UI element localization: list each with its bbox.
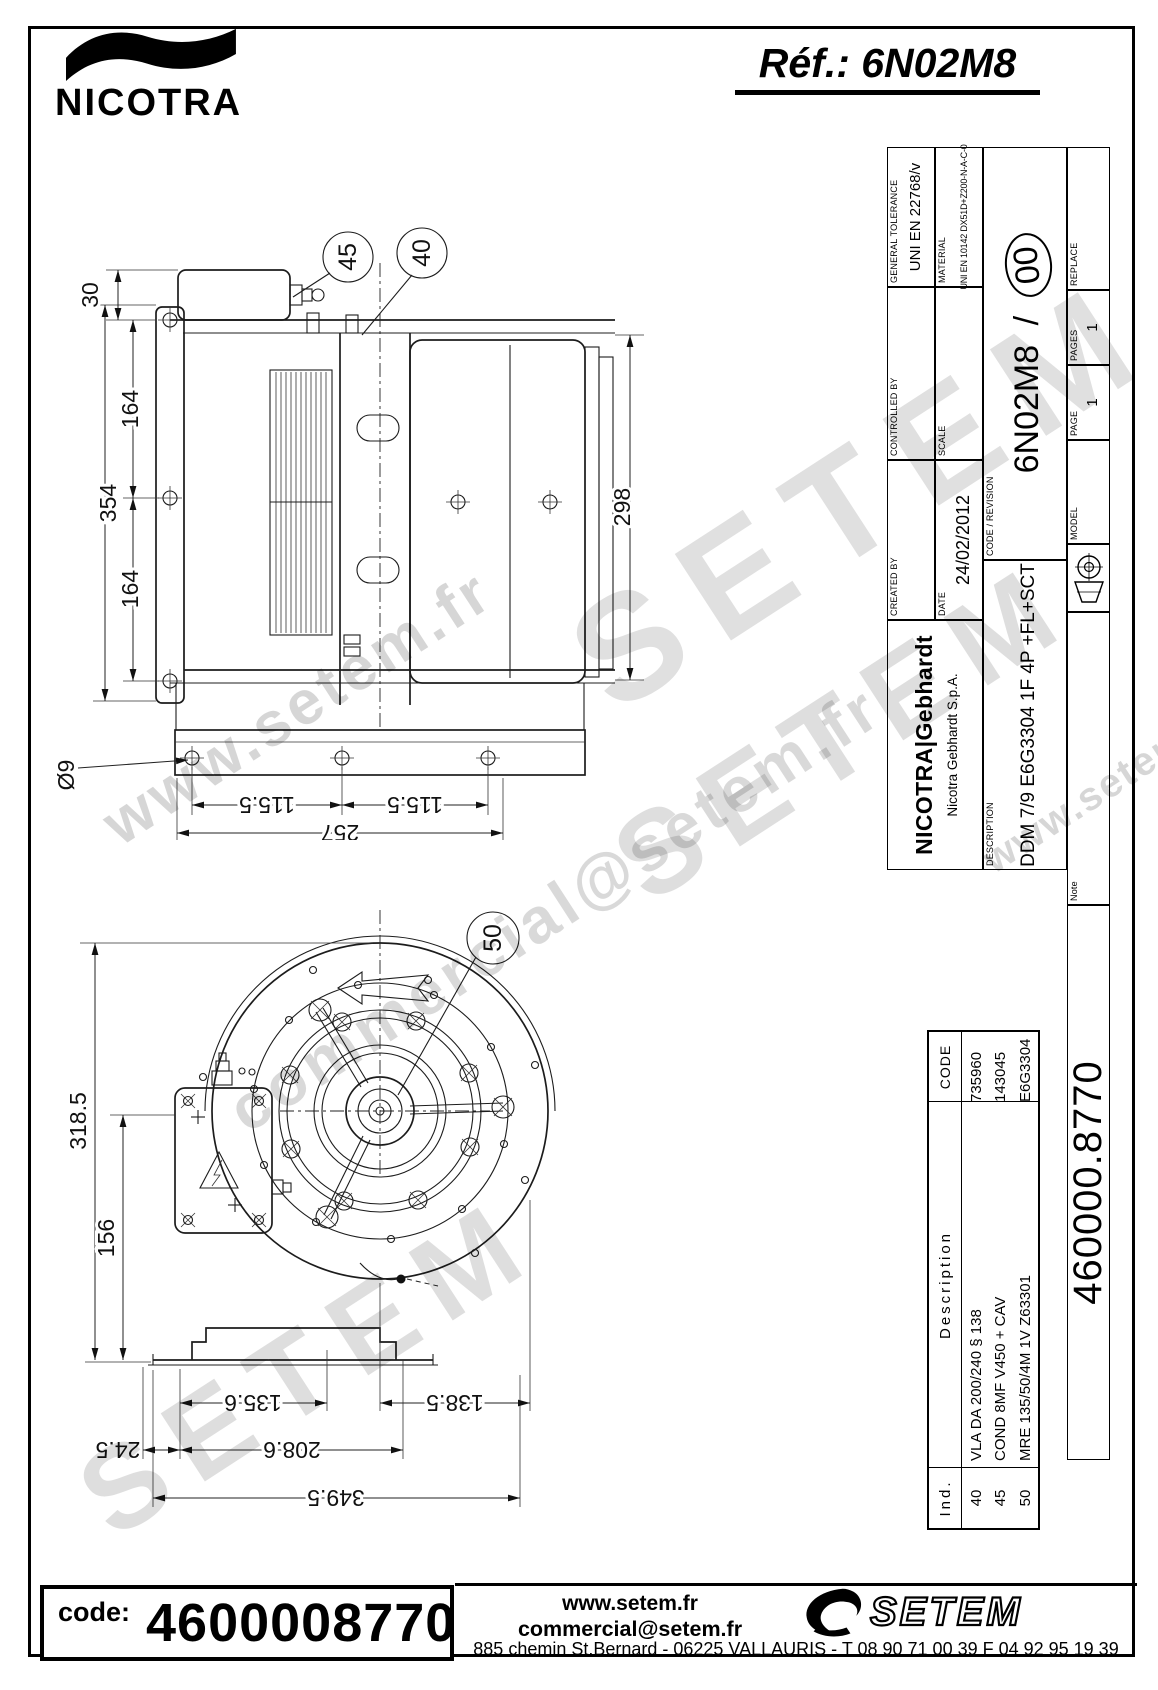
drawing-sheet: NICOTRA Réf.: 6N02M8 bbox=[0, 0, 1158, 1690]
pages-label: PAGES bbox=[1069, 330, 1079, 361]
dim-hole-diameter: Ø9 bbox=[53, 760, 79, 791]
row-description: MRE 135/50/4M 1V Z63301 bbox=[1017, 1102, 1034, 1468]
scale-label: SCALE bbox=[937, 425, 947, 456]
dim-298: 298 bbox=[609, 488, 635, 526]
general-tolerance-value: UNI EN 22768/v bbox=[899, 163, 924, 271]
impeller-louvers bbox=[270, 370, 332, 635]
company-subtitle: Nicotra Gebhardt S.p.A. bbox=[945, 673, 960, 816]
description-value: DDM 7/9 E6G3304 1F 4P +FL+SCT bbox=[1010, 563, 1040, 867]
general-tolerance-label: GENERAL TOLERANCE bbox=[889, 180, 899, 283]
row-code: E6G3304 bbox=[1017, 1032, 1034, 1102]
controlled-by-cell: CONTROLLED BY bbox=[887, 287, 935, 460]
dim-164-upper: 164 bbox=[117, 390, 143, 429]
material-value: UNI EN 10142 DX51D+Z200-N-A-C-0 bbox=[950, 144, 969, 289]
contact-block: www.setem.fr commercial@setem.fr bbox=[465, 1592, 795, 1642]
dim-156: 156 bbox=[93, 1219, 119, 1257]
page-value: 1 bbox=[1076, 398, 1101, 406]
nicotra-wave-icon bbox=[55, 25, 245, 81]
side-view-drawing: 30 354 164 164 298 115.5 115.5 257 Ø9 45… bbox=[30, 215, 680, 840]
blower-housing-side bbox=[156, 263, 615, 775]
material-cell: MATERIAL UNI EN 10142 DX51D+Z200-N-A-C-0 bbox=[935, 147, 983, 287]
callout-50-label: 50 bbox=[479, 924, 507, 952]
nicotra-logo: NICOTRA bbox=[55, 25, 260, 125]
created-by-label: CREATED BY bbox=[889, 557, 899, 616]
setem-logo-icon bbox=[800, 1584, 864, 1640]
code-revision-value: 6N02M8 / 00 bbox=[999, 234, 1052, 474]
parts-table-rows: 40 VLA DA 200/240 § 138 735960 45 COND 8… bbox=[964, 1032, 1038, 1528]
dim-135-6: 135.6 bbox=[224, 1390, 282, 1416]
dim-349-5: 349.5 bbox=[307, 1485, 365, 1511]
date-label: DATE bbox=[937, 592, 947, 616]
table-row: 45 COND 8MF V450 + CAV 143045 bbox=[989, 1032, 1014, 1528]
front-view-dimensions: 318.5 156 135.6 138.5 24.5 208.6 349.5 bbox=[65, 943, 530, 1511]
front-view-drawing: 318.5 156 135.6 138.5 24.5 208.6 349.5 5… bbox=[30, 855, 680, 1540]
code-revision-label: CODE / REVISION bbox=[985, 476, 995, 556]
created-by-cell: CREATED BY bbox=[887, 460, 935, 620]
header-code: CODE bbox=[929, 1032, 961, 1102]
dim-115-right: 115.5 bbox=[387, 792, 443, 818]
projection-cell bbox=[1067, 544, 1110, 612]
date-cell: DATE 24/02/2012 bbox=[935, 460, 983, 620]
scroll-housing bbox=[200, 910, 556, 1286]
row-ind: 50 bbox=[1017, 1468, 1034, 1528]
row-code: 143045 bbox=[992, 1032, 1009, 1102]
row-code: 735960 bbox=[968, 1032, 985, 1102]
callout-45: 45 bbox=[293, 232, 373, 297]
code-value: 6N02M8 bbox=[1008, 345, 1046, 474]
row-description: VLA DA 200/240 § 138 bbox=[968, 1102, 985, 1468]
dim-354: 354 bbox=[95, 484, 121, 523]
model-label: MODEL bbox=[1069, 507, 1079, 540]
base-plate bbox=[148, 1328, 438, 1365]
pages-cell: PAGES 1 bbox=[1067, 290, 1110, 365]
date-value: 24/02/2012 bbox=[945, 495, 974, 585]
doc-number: 460000.8770 bbox=[1066, 1060, 1111, 1305]
dim-115-left: 115.5 bbox=[239, 792, 295, 818]
setem-logo: SETEM bbox=[800, 1584, 1023, 1640]
controlled-by-label: CONTROLLED BY bbox=[889, 377, 899, 456]
dim-164-lower: 164 bbox=[117, 570, 143, 609]
code-revision-separator: / bbox=[1008, 316, 1046, 325]
company-cell: NICOTRA|Gebhardt Nicotra Gebhardt S.p.A. bbox=[887, 620, 983, 870]
setem-logo-text: SETEM bbox=[870, 1590, 1023, 1635]
description-cell: DESCRIPTION DDM 7/9 E6G3304 1F 4P +FL+SC… bbox=[983, 560, 1067, 870]
code-revision-cell: CODE / REVISION 6N02M8 / 00 bbox=[983, 147, 1067, 560]
doc-number-cell: 460000.8770 bbox=[1067, 905, 1110, 1460]
dim-318-5: 318.5 bbox=[65, 1092, 91, 1150]
dim-208-6: 208.6 bbox=[263, 1437, 321, 1463]
material-label: MATERIAL bbox=[937, 237, 947, 283]
dim-257: 257 bbox=[321, 820, 359, 840]
reference-number: Réf.: 6N02M8 bbox=[735, 40, 1040, 95]
company-name: NICOTRA|Gebhardt bbox=[911, 635, 938, 855]
replace-label: REPLACE bbox=[1069, 243, 1079, 286]
code-value: 4600008770 bbox=[146, 1592, 456, 1654]
row-description: COND 8MF V450 + CAV bbox=[992, 1102, 1009, 1468]
callout-40-label: 40 bbox=[408, 239, 436, 267]
header-ind: Ind. bbox=[929, 1468, 961, 1528]
motor-bracket bbox=[307, 313, 410, 705]
terminal-box bbox=[175, 1053, 291, 1233]
model-cell: MODEL bbox=[1067, 440, 1110, 544]
dim-30: 30 bbox=[77, 282, 103, 308]
table-row: 40 VLA DA 200/240 § 138 735960 bbox=[964, 1032, 989, 1528]
callout-45-label: 45 bbox=[334, 243, 362, 271]
note-label: Note bbox=[1069, 881, 1079, 901]
footer-divider bbox=[455, 1583, 1137, 1586]
revision-value: 00 bbox=[1001, 231, 1054, 299]
parts-table-box: Ind. Description CODE 40 VLA DA 200/240 … bbox=[927, 1030, 1040, 1530]
callout-40: 40 bbox=[362, 228, 447, 335]
code-box: code: 4600008770 bbox=[40, 1585, 454, 1661]
address-line: 885 chemin St.Bernard - 06225 VALLAURIS … bbox=[458, 1639, 1134, 1660]
table-row: 50 MRE 135/50/4M 1V Z63301 E6G3304 bbox=[1013, 1032, 1038, 1528]
projection-symbol-icon bbox=[1070, 548, 1108, 608]
description-label: DESCRIPTION bbox=[985, 802, 995, 866]
brand-name: NICOTRA bbox=[55, 82, 260, 125]
general-tolerance-cell: GENERAL TOLERANCE UNI EN 22768/v bbox=[887, 147, 935, 287]
motor-body bbox=[410, 340, 613, 683]
website-link[interactable]: www.setem.fr bbox=[465, 1592, 795, 1616]
replace-cell: REPLACE bbox=[1067, 147, 1110, 290]
pages-value: 1 bbox=[1076, 323, 1101, 331]
dim-138-5: 138.5 bbox=[426, 1390, 484, 1416]
page-cell: PAGE 1 bbox=[1067, 365, 1110, 440]
header-description: Description bbox=[929, 1102, 961, 1468]
parts-table-header: Ind. Description CODE bbox=[929, 1032, 962, 1528]
dim-24-5: 24.5 bbox=[96, 1437, 141, 1463]
parts-table: Ind. Description CODE 40 VLA DA 200/240 … bbox=[887, 1030, 1040, 1530]
scale-cell: SCALE bbox=[935, 287, 983, 460]
row-ind: 40 bbox=[968, 1468, 985, 1528]
page-label: PAGE bbox=[1069, 411, 1079, 436]
code-label: code: bbox=[58, 1597, 130, 1628]
row-ind: 45 bbox=[992, 1468, 1009, 1528]
note-cell: Note bbox=[1067, 612, 1110, 905]
